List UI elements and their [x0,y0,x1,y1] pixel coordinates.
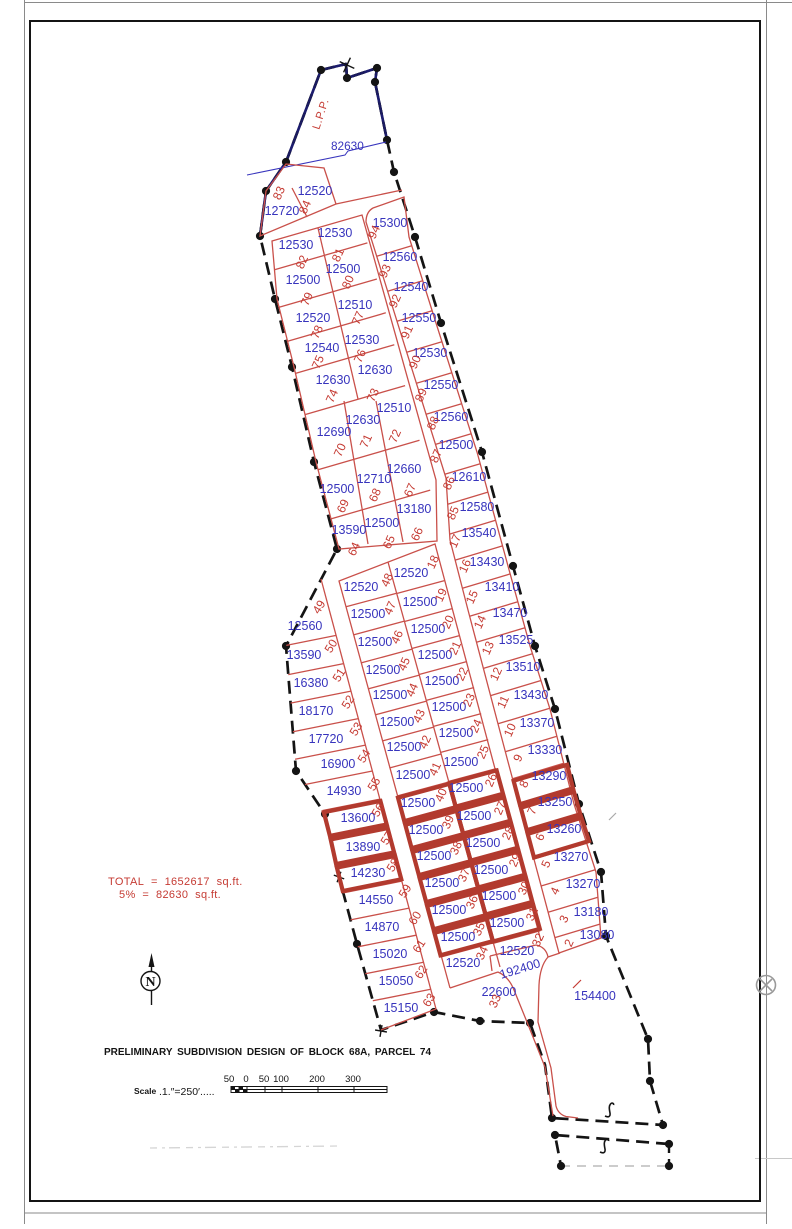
svg-text:12530: 12530 [279,238,314,252]
svg-text:16900: 16900 [321,757,356,771]
svg-text:13540: 13540 [462,526,497,540]
svg-text:15020: 15020 [373,947,408,961]
svg-text:12560: 12560 [383,250,418,264]
svg-text:12500: 12500 [396,768,431,782]
svg-text:12540: 12540 [394,280,429,294]
svg-text:12500: 12500 [320,482,355,496]
svg-text:12540: 12540 [305,341,340,355]
svg-text:13290: 13290 [532,769,567,783]
svg-text:12500: 12500 [444,755,479,769]
svg-text:154400: 154400 [574,989,616,1003]
svg-text:13525: 13525 [499,633,534,647]
svg-text:12500: 12500 [449,781,484,795]
svg-text:13430: 13430 [470,555,505,569]
svg-text:13250: 13250 [538,795,573,809]
svg-text:12520: 12520 [394,566,429,580]
svg-text:0: 0 [243,1074,248,1085]
svg-text:12530: 12530 [318,226,353,240]
svg-text:14870: 14870 [365,920,400,934]
svg-text:17720: 17720 [309,732,344,746]
svg-text:12580: 12580 [460,500,495,514]
svg-text:12630: 12630 [358,363,393,377]
svg-text:13180: 13180 [574,905,609,919]
svg-text:PRELIMINARY SUBDIVISION DESIGN: PRELIMINARY SUBDIVISION DESIGN OF BLOCK … [104,1047,431,1058]
svg-text:13180: 13180 [397,502,432,516]
svg-text:12500: 12500 [432,903,467,917]
svg-text:13270: 13270 [566,877,601,891]
svg-text:12530: 12530 [345,333,380,347]
svg-text:13590: 13590 [332,523,367,537]
svg-text:15050: 15050 [379,974,414,988]
svg-text:12560: 12560 [288,619,323,633]
svg-text:15150: 15150 [384,1001,419,1015]
svg-text:14550: 14550 [359,893,394,907]
svg-text:12520: 12520 [296,311,331,325]
svg-text:12500: 12500 [490,916,525,930]
svg-text:12550: 12550 [402,311,437,325]
svg-text:200: 200 [309,1074,325,1085]
svg-text:13370: 13370 [520,716,555,730]
svg-text:12630: 12630 [346,413,381,427]
svg-text:12500: 12500 [387,740,422,754]
svg-text:12500: 12500 [351,607,386,621]
svg-text:300: 300 [345,1074,361,1085]
svg-text:14930: 14930 [327,784,362,798]
svg-text:13890: 13890 [346,840,381,854]
svg-text:14230: 14230 [351,866,386,880]
svg-text:12500: 12500 [482,889,517,903]
svg-text:12690: 12690 [317,425,352,439]
svg-text:13260: 13260 [547,822,582,836]
svg-text:12500: 12500 [474,863,509,877]
svg-text:12500: 12500 [373,688,408,702]
svg-text:16380: 16380 [294,676,329,690]
svg-text:13330: 13330 [528,743,563,757]
svg-text:12520: 12520 [500,944,535,958]
svg-text:Scale: Scale [134,1086,156,1096]
svg-text:18170: 18170 [299,704,334,718]
svg-text:12500: 12500 [365,516,400,530]
svg-text:5% = 82630 sq.ft.: 5% = 82630 sq.ft. [119,889,221,901]
svg-text:13590: 13590 [287,648,322,662]
svg-text:12510: 12510 [377,401,412,415]
svg-text:13270: 13270 [554,850,589,864]
svg-text:12720: 12720 [265,204,300,218]
svg-text:12660: 12660 [387,462,422,476]
svg-text:12500: 12500 [457,809,492,823]
svg-text:12500: 12500 [286,273,321,287]
svg-text:N: N [145,975,155,990]
svg-text:12500: 12500 [358,635,393,649]
svg-text:12500: 12500 [401,796,436,810]
svg-text:12500: 12500 [439,438,474,452]
svg-text:12630: 12630 [316,373,351,387]
svg-text:TOTAL = 1652617 sq.ft.: TOTAL = 1652617 sq.ft. [108,876,243,888]
svg-text:13470: 13470 [493,606,528,620]
svg-text:100: 100 [273,1074,289,1085]
svg-text:13080: 13080 [580,928,615,942]
svg-text:12500: 12500 [380,715,415,729]
svg-text:13430: 13430 [514,688,549,702]
svg-text:12520: 12520 [298,184,333,198]
svg-text:50: 50 [259,1074,270,1085]
svg-text:50: 50 [224,1074,235,1085]
svg-text:12550: 12550 [424,378,459,392]
svg-text:12500: 12500 [466,836,501,850]
svg-text:13410: 13410 [485,580,520,594]
svg-text:12520: 12520 [344,580,379,594]
svg-text:13510: 13510 [506,660,541,674]
svg-text:.1.″=250′.....: .1.″=250′..... [159,1086,215,1098]
